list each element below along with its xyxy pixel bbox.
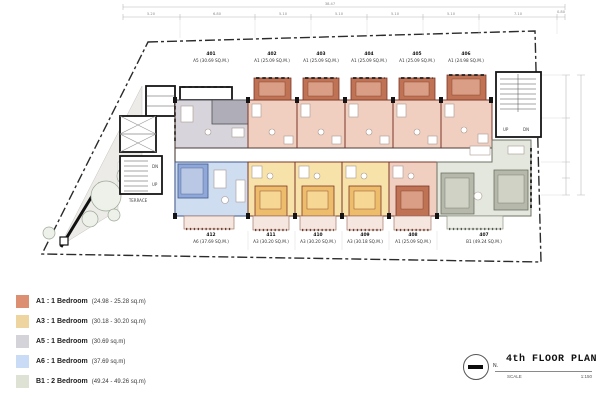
- unit-number: 404: [364, 51, 373, 57]
- title-block: N. 4th FLOOR PLAN SCALE 1:150: [452, 350, 594, 386]
- stair-up-label: UP: [152, 182, 158, 187]
- dim-seg: 5.10: [335, 12, 344, 16]
- unit-number: 409: [360, 232, 369, 238]
- dim-seg: 0.80: [557, 10, 566, 14]
- unit-type: B1 (49.24 SQ.M.): [466, 239, 502, 244]
- dim-seg: 5.10: [391, 12, 400, 16]
- north-arrow-icon: [463, 354, 489, 380]
- legend-item-a3: A3 : 1 Bedroom (30.18 - 30.20 sq.m): [16, 315, 146, 328]
- dim-seg: 7.10: [514, 12, 523, 16]
- dim-seg: 5.10: [279, 12, 288, 16]
- legend-label: A3 : 1 Bedroom: [36, 318, 88, 325]
- dim-seg: 6.80: [213, 12, 222, 16]
- unit-type: A1 (25.09 SQ.M.): [303, 58, 339, 63]
- unit-number: 411: [266, 232, 275, 238]
- core-left: DN UP: [120, 86, 175, 194]
- legend-swatch-a6: [16, 355, 29, 368]
- legend-area: (30.18 - 30.20 sq.m): [92, 319, 146, 325]
- scale-label: SCALE: [507, 374, 522, 379]
- unit-number: 410: [313, 232, 322, 238]
- unit-number: 403: [316, 51, 325, 57]
- unit-type: A1 (25.09 SQ.M.): [395, 239, 431, 244]
- legend: A1 : 1 Bedroom (24.98 - 25.28 sq.m) A3 :…: [16, 295, 146, 395]
- title-rule: [495, 371, 592, 372]
- unit-labels-bottom: 412 A6 (37.69 SQ.M.) 411 A3 (30.20 SQ.M.…: [193, 232, 502, 244]
- dim-seg: 5.10: [447, 12, 456, 16]
- legend-item-b1: B1 : 2 Bedroom (49.24 - 49.26 sq.m): [16, 375, 146, 388]
- unit-number: 406: [461, 51, 470, 57]
- stair-right-down-label: DN: [523, 127, 529, 132]
- floor-plan-page: { "plan": { "title": "4th FLOOR PLAN", "…: [0, 0, 600, 400]
- dim-seg: 5.20: [147, 12, 156, 16]
- unit-number: 405: [412, 51, 421, 57]
- stair-right-up-label: UP: [503, 127, 509, 132]
- legend-swatch-a5: [16, 335, 29, 348]
- legend-item-a6: A6 : 1 Bedroom (37.69 sq.m): [16, 355, 146, 368]
- unit-type: A3 (30.18 SQ.M.): [347, 239, 383, 244]
- terrace-label: TERRACE: [128, 198, 148, 203]
- legend-area: (37.69 sq.m): [92, 359, 126, 365]
- legend-swatch-a1: [16, 295, 29, 308]
- legend-label: A6 : 1 Bedroom: [36, 358, 88, 365]
- unit-type: A6 (37.69 SQ.M.): [193, 239, 229, 244]
- unit-type: A3 (30.20 SQ.M.): [253, 239, 289, 244]
- unit-type: A5 (30.69 SQ.M.): [193, 58, 229, 63]
- scale-value: 1:150: [581, 374, 592, 379]
- legend-area: (24.98 - 25.28 sq.m): [92, 299, 146, 305]
- unit-type: A1 (24.98 SQ.M.): [448, 58, 484, 63]
- dim-total: 38.47: [325, 2, 335, 6]
- stair-down-label: DN: [152, 164, 158, 169]
- unit-type: A1 (25.09 SQ.M.): [351, 58, 387, 63]
- legend-area: (49.24 - 49.26 sq.m): [92, 379, 146, 385]
- legend-label: A5 : 1 Bedroom: [36, 338, 88, 345]
- unit-number: 408: [408, 232, 417, 238]
- legend-swatch-a3: [16, 315, 29, 328]
- legend-label: A1 : 1 Bedroom: [36, 298, 88, 305]
- legend-label: B1 : 2 Bedroom: [36, 378, 88, 385]
- legend-item-a5: A5 : 1 Bedroom (30.69 sq.m): [16, 335, 146, 348]
- stair-left: [120, 156, 162, 194]
- page-title: 4th FLOOR PLAN: [506, 354, 597, 365]
- unit-number: 412: [206, 232, 215, 238]
- unit-number: 407: [479, 232, 488, 238]
- unit-type: A1 (25.09 SQ.M.): [254, 58, 290, 63]
- north-label: N.: [493, 363, 498, 369]
- unit-number: 402: [267, 51, 276, 57]
- unit-labels-top: 401 A5 (30.69 SQ.M.) 402 A1 (25.09 SQ.M.…: [193, 51, 484, 63]
- legend-item-a1: A1 : 1 Bedroom (24.98 - 25.28 sq.m): [16, 295, 146, 308]
- legend-swatch-b1: [16, 375, 29, 388]
- service-rooms: [146, 86, 175, 116]
- unit-number: 401: [206, 51, 215, 57]
- stair-right: UP DN: [496, 72, 541, 137]
- legend-area: (30.69 sq.m): [92, 339, 126, 345]
- unit-type: A3 (30.20 SQ.M.): [300, 239, 336, 244]
- unit-type: A1 (25.09 SQ.M.): [399, 58, 435, 63]
